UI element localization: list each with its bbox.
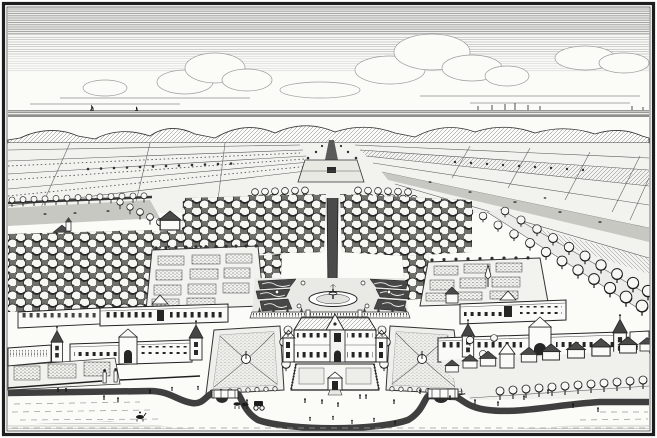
chimney-icon [306, 310, 310, 317]
forecourt [291, 364, 379, 395]
mansion-facade [294, 330, 376, 362]
kitchen-garden-right [420, 256, 548, 306]
rear-formal-garden [250, 278, 410, 318]
entrance-door [334, 351, 341, 363]
parterre-garden-left [206, 326, 284, 394]
gate-steps [328, 390, 342, 395]
gate-pavilion-left [119, 329, 137, 364]
engraving-canvas [0, 0, 657, 438]
far-gate-icon [327, 167, 336, 173]
chimney-icon [358, 310, 362, 317]
avenue-lower [327, 198, 338, 290]
engraving [0, 0, 657, 438]
